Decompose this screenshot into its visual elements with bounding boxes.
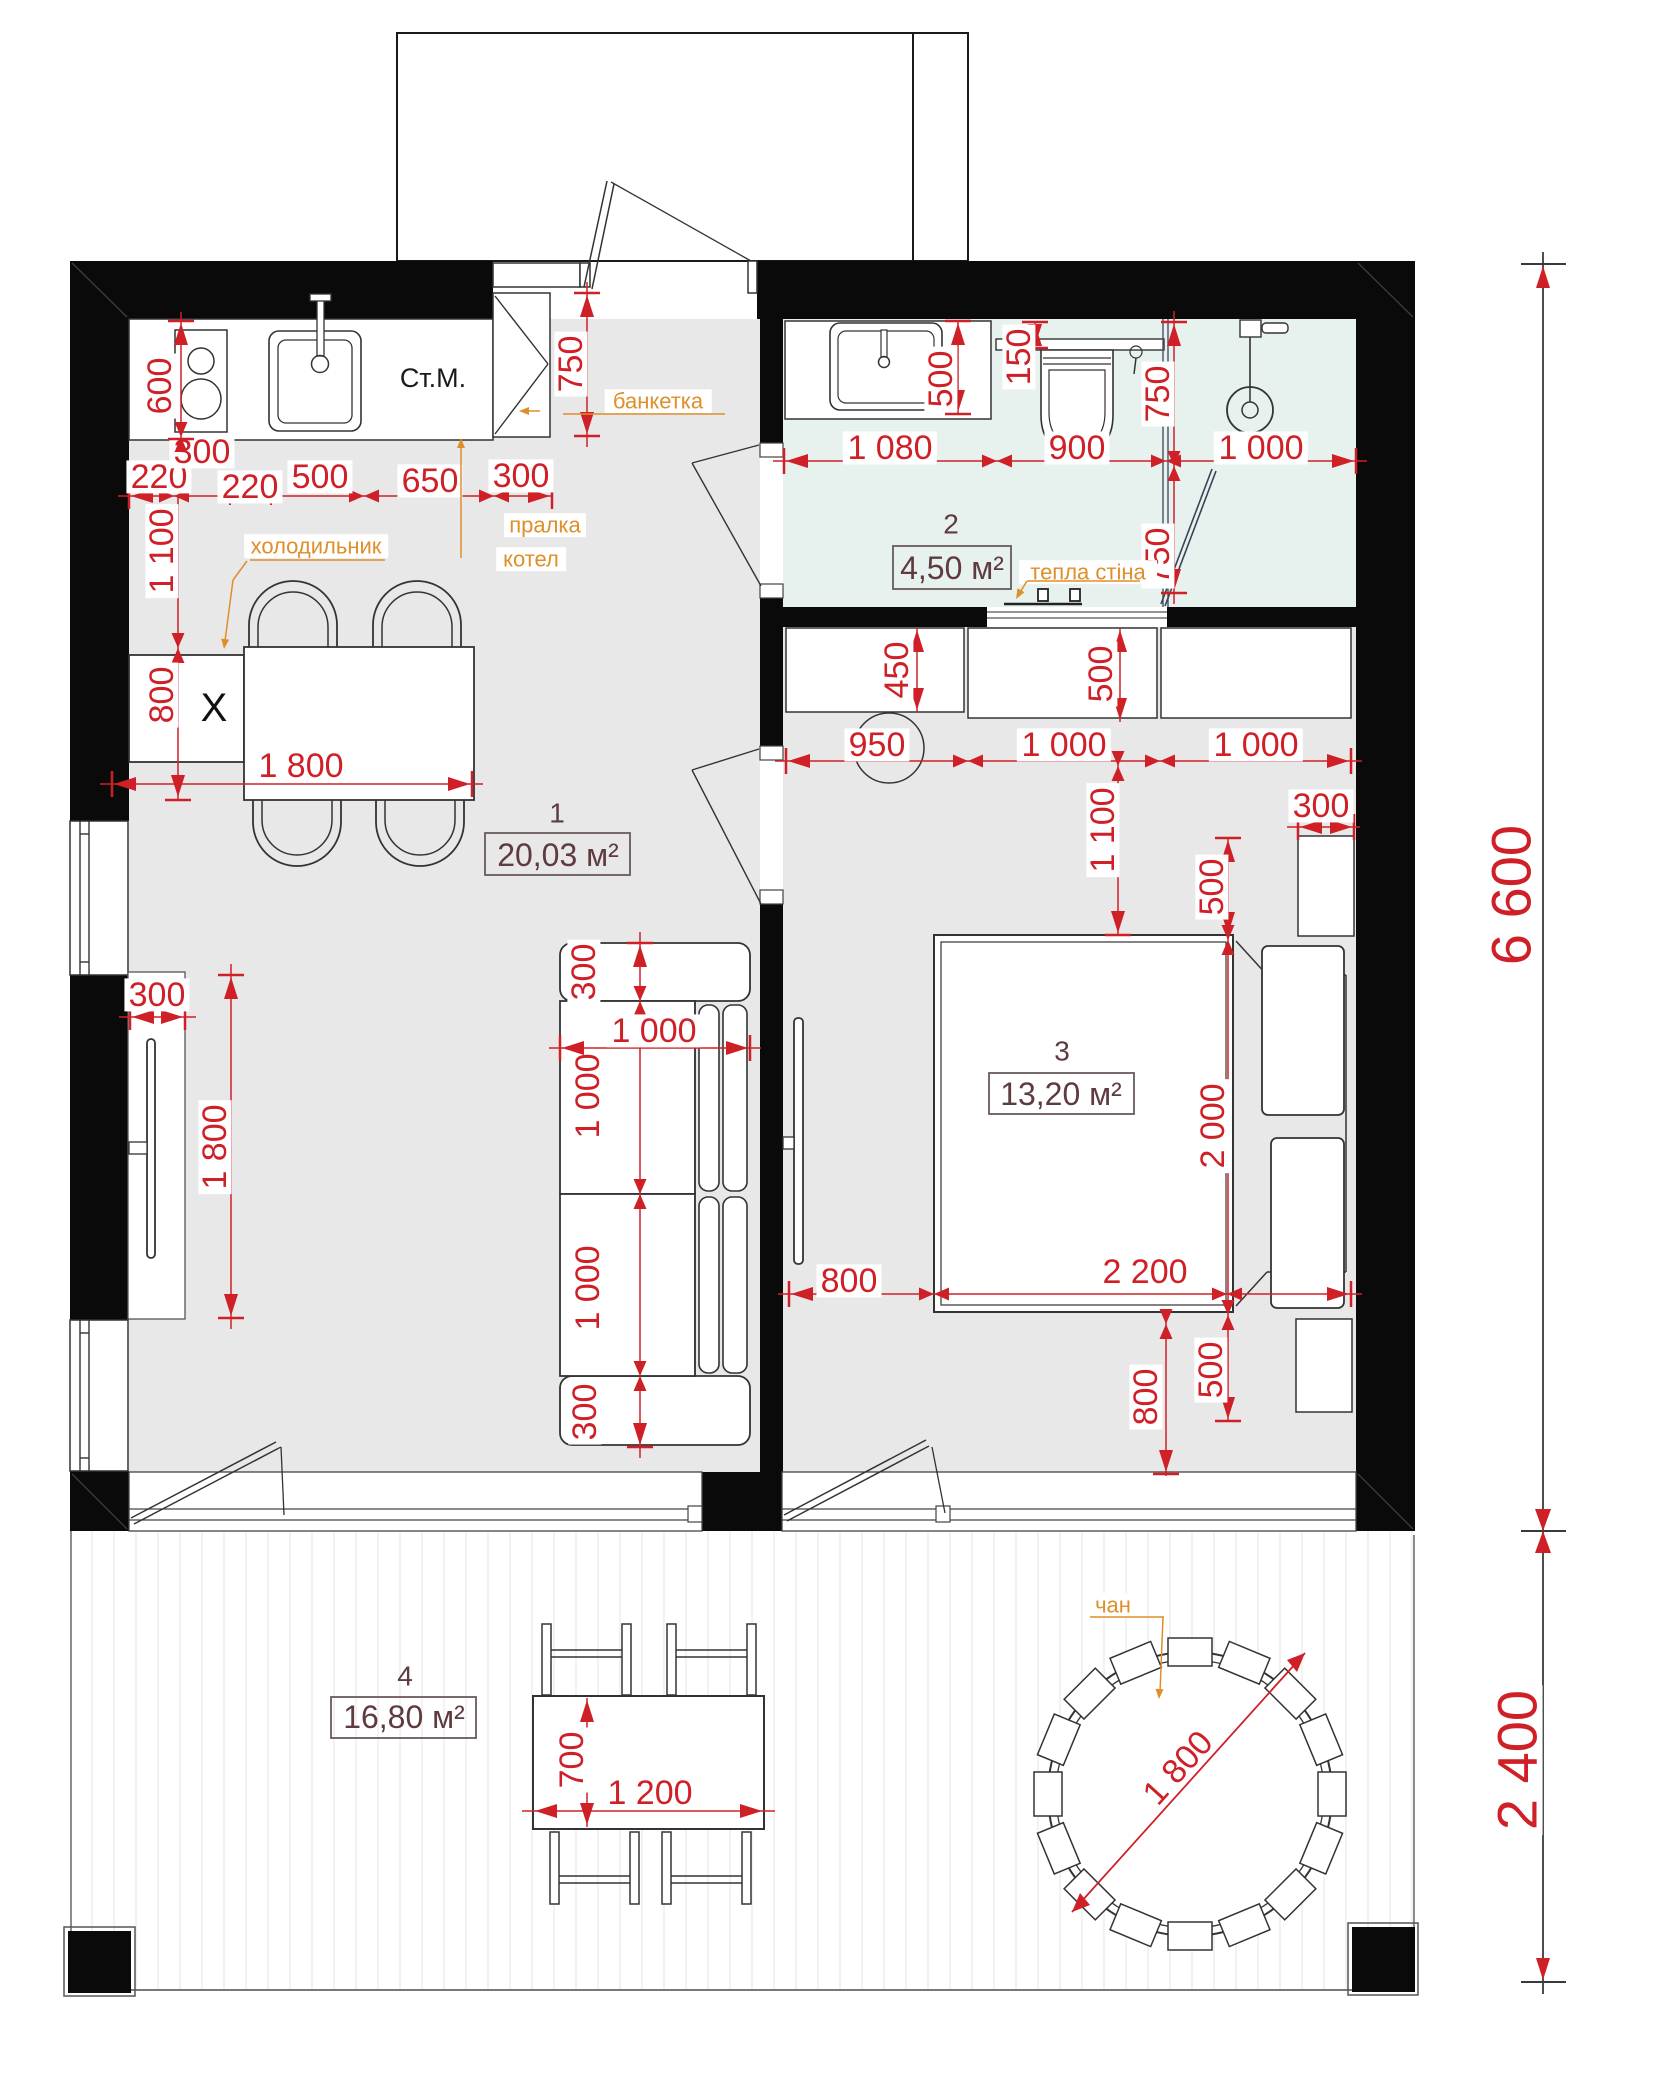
svg-text:холодильник: холодильник [251,534,382,559]
svg-text:1 800: 1 800 [258,747,343,785]
svg-text:1 100: 1 100 [1084,787,1122,872]
svg-text:1 000: 1 000 [569,1245,607,1330]
svg-text:300: 300 [129,976,186,1014]
svg-text:2 000: 2 000 [1194,1083,1232,1168]
svg-text:600: 600 [141,358,179,415]
svg-text:750: 750 [552,336,590,393]
svg-text:700: 700 [553,1732,591,1789]
svg-text:950: 950 [849,726,906,764]
svg-text:1 000: 1 000 [1213,726,1298,764]
svg-text:300: 300 [565,944,603,1001]
svg-text:300: 300 [493,457,550,495]
svg-text:500: 500 [292,458,349,496]
svg-text:20,03 м²: 20,03 м² [497,837,619,873]
svg-text:1 200: 1 200 [607,1774,692,1812]
svg-text:800: 800 [1127,1369,1165,1426]
svg-text:4,50 м²: 4,50 м² [900,550,1004,586]
svg-text:3: 3 [1054,1036,1070,1067]
svg-text:1 000: 1 000 [569,1053,607,1138]
svg-text:450: 450 [878,642,916,699]
svg-text:1 080: 1 080 [847,429,932,467]
svg-text:X: X [201,686,228,730]
svg-text:500: 500 [1192,1342,1230,1399]
svg-text:800: 800 [143,667,181,724]
svg-text:чан: чан [1095,1593,1131,1618]
svg-text:2 400: 2 400 [1486,1690,1549,1830]
svg-text:650: 650 [402,462,459,500]
svg-text:13,20 м²: 13,20 м² [1000,1076,1122,1112]
svg-text:750: 750 [1139,366,1177,423]
svg-text:220: 220 [222,468,279,506]
svg-text:пралка: пралка [509,513,581,538]
svg-text:500: 500 [922,351,960,408]
svg-text:900: 900 [1049,429,1106,467]
svg-text:2 200: 2 200 [1102,1253,1187,1291]
svg-text:1 000: 1 000 [611,1012,696,1050]
svg-text:500: 500 [1082,646,1120,703]
svg-text:банкетка: банкетка [613,389,704,414]
svg-text:1: 1 [549,798,565,829]
svg-text:1 000: 1 000 [1218,429,1303,467]
svg-text:150: 150 [1000,329,1038,386]
svg-text:1 000: 1 000 [1021,726,1106,764]
svg-text:300: 300 [566,1384,604,1441]
svg-text:6 600: 6 600 [1480,825,1543,965]
svg-text:2: 2 [943,509,959,540]
svg-text:800: 800 [821,1262,878,1300]
svg-text:котел: котел [503,547,559,572]
svg-text:4: 4 [397,1661,413,1692]
svg-text:500: 500 [1193,859,1231,916]
svg-text:16,80 м²: 16,80 м² [343,1699,465,1735]
svg-text:1 100: 1 100 [143,508,181,593]
svg-text:1 800: 1 800 [196,1104,234,1189]
svg-text:Ст.М.: Ст.М. [400,363,466,393]
svg-text:300: 300 [1293,787,1350,825]
